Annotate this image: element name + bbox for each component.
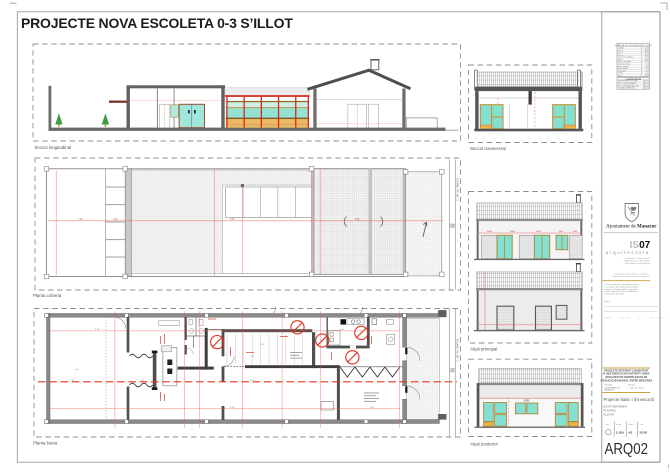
svg-text:IS07: IS07 — [630, 240, 651, 251]
svg-text:arquitectura: arquitectura — [606, 250, 651, 255]
svg-text:Alçat principal: Alçat principal — [470, 347, 497, 352]
svg-text:REF 15.07 07 07.2020: REF 15.07 07 07.2020 — [605, 317, 666, 319]
svg-text:promotor de les obres: promotor de les obres — [605, 293, 624, 296]
svg-text:Núm.: Núm. — [606, 424, 611, 426]
svg-text:Ajuntament de Manacor: Ajuntament de Manacor — [606, 225, 657, 230]
svg-text:c. Llop, s/n · S’Illot: c. Llop, s/n · S’Illot — [628, 387, 644, 390]
svg-text:ESTAT REFORMAT: ESTAT REFORMAT — [604, 404, 628, 408]
svg-text:is07arquitectura@gmail.com: is07arquitectura@gmail.com — [625, 262, 651, 265]
svg-text:Projecte bàsic i d’execució: Projecte bàsic i d’execució — [604, 397, 655, 402]
svg-text:pati: pati — [75, 368, 79, 371]
svg-text:c. de sa marina: c. de sa marina — [456, 178, 460, 201]
svg-text:Format: Format — [628, 423, 634, 426]
svg-text:Secció transversal: Secció transversal — [470, 146, 506, 151]
svg-text:62,4%: 62,4% — [644, 88, 649, 90]
svg-text:Data: Data — [640, 423, 644, 426]
svg-text:2,08: 2,08 — [113, 219, 118, 221]
svg-text:porxo: porxo — [618, 75, 623, 77]
svg-text:ARQ02: ARQ02 — [605, 441, 649, 458]
svg-text:PROJECTE INTEGRAT CONSISTENT: PROJECTE INTEGRAT CONSISTENT — [604, 368, 649, 372]
svg-text:PROJECTE NOVA ESCOLETA 0-3 S’I: PROJECTE NOVA ESCOLETA 0-3 S’ILLOT — [21, 15, 293, 31]
svg-text:c. de sa marina: c. de sa marina — [456, 339, 460, 362]
svg-text:MANACOR: MANACOR — [605, 389, 615, 392]
svg-text:38,90: 38,90 — [645, 75, 650, 77]
svg-text:C/ Soledat, 7 baixos - local 2: C/ Soledat, 7 baixos - local 2 — [625, 257, 651, 260]
svg-text:Notes:: Notes: — [605, 300, 611, 303]
svg-text:7,52: 7,52 — [78, 219, 83, 221]
svg-text:A3: A3 — [628, 430, 632, 434]
svg-text:Alçat posterior: Alçat posterior — [470, 441, 499, 446]
svg-text:Escala: Escala — [616, 424, 621, 426]
svg-text:Pere Joan Femenias Rosselló ·: Pere Joan Femenias Rosselló · arquitecte — [612, 275, 650, 278]
svg-text:5,60: 5,60 — [355, 219, 360, 221]
svg-text:Secció longitudinal: Secció longitudinal — [35, 145, 72, 150]
svg-text:OCUPACIO PARCELA: OCUPACIO PARCELA — [618, 87, 636, 90]
svg-text:Situació:: Situació: — [628, 384, 636, 387]
svg-text:9,40: 9,40 — [230, 219, 235, 221]
svg-text:12-20: 12-20 — [639, 430, 647, 434]
svg-text:Joana Maria Ramis Salas · arqu: Joana Maria Ramis Salas · arquitecta — [614, 272, 648, 275]
svg-text:QUADRE DE SUPERFICIES UTILS: QUADRE DE SUPERFICIES UTILS — [615, 44, 653, 47]
svg-text:Planta baixa: Planta baixa — [33, 441, 58, 446]
svg-text:Promotor:: Promotor: — [605, 384, 614, 387]
svg-text:ALÇATS: ALÇATS — [604, 412, 614, 416]
svg-text:1:150: 1:150 — [616, 430, 624, 434]
svg-text:PLANTES: PLANTES — [604, 408, 616, 412]
svg-text:NOVA PER UN CENTRE ESCOLAR: NOVA PER UN CENTRE ESCOLAR — [606, 375, 648, 379]
svg-text:Planta coberta: Planta coberta — [33, 293, 62, 298]
